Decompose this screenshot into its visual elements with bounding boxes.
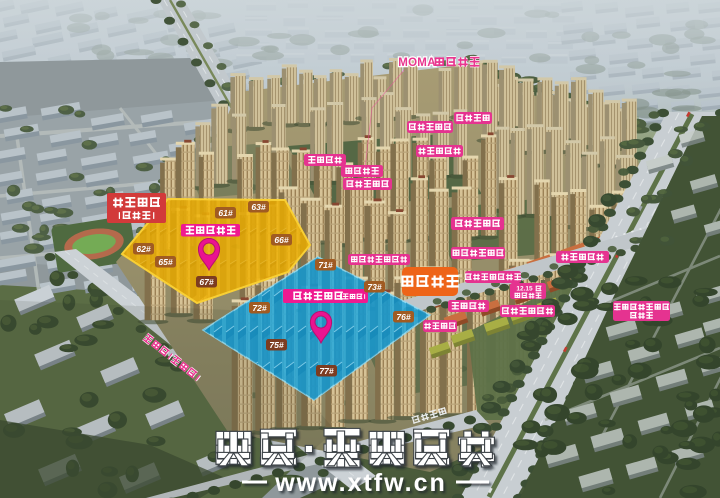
svg-text:61#: 61# bbox=[218, 208, 233, 218]
svg-text:67#: 67# bbox=[199, 277, 214, 287]
svg-text:71#: 71# bbox=[318, 260, 333, 270]
svg-text:76#: 76# bbox=[396, 312, 411, 322]
svg-text:www.xtfw.cn: www.xtfw.cn bbox=[274, 469, 447, 497]
svg-text:75#: 75# bbox=[269, 340, 284, 350]
svg-text:63#: 63# bbox=[251, 202, 266, 212]
svg-text:62#: 62# bbox=[136, 244, 151, 254]
svg-text:65#: 65# bbox=[158, 257, 173, 267]
svg-text:66#: 66# bbox=[274, 235, 289, 245]
svg-text:12.15: 12.15 bbox=[516, 286, 533, 293]
svg-text:72#: 72# bbox=[252, 303, 267, 313]
svg-text:MOMA: MOMA bbox=[398, 57, 436, 69]
svg-text:73#: 73# bbox=[367, 282, 382, 292]
svg-text:77#: 77# bbox=[319, 366, 334, 376]
